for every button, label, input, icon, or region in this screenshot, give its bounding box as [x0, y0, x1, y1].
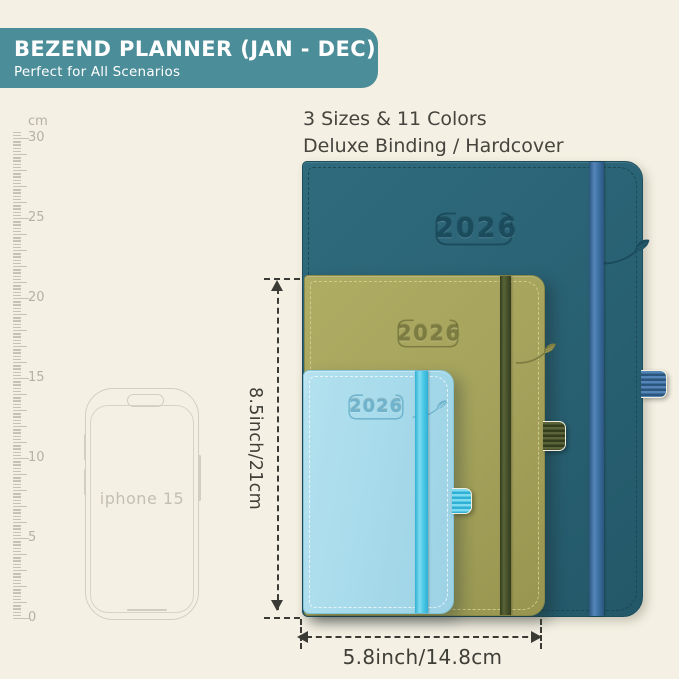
dimension-line — [277, 288, 279, 610]
ruler-tick — [13, 413, 21, 414]
ruler-tick — [13, 464, 21, 465]
width-label: 5.8inch/14.8cm — [330, 645, 515, 669]
ruler-tick — [13, 224, 21, 225]
ruler-tick — [13, 279, 21, 280]
ruler-tick — [13, 362, 27, 363]
ruler-tick — [13, 212, 21, 213]
ruler-tick — [13, 586, 27, 587]
ruler-tick — [13, 208, 21, 209]
ruler-tick — [13, 372, 21, 373]
ruler-tick — [13, 420, 21, 421]
dimension-tick — [264, 617, 300, 619]
product-image-canvas: BEZEND PLANNER (JAN - DEC) Perfect for A… — [0, 0, 679, 679]
ruler-tick — [13, 368, 21, 369]
ruler-tick — [13, 487, 21, 488]
ruler-tick — [13, 589, 21, 590]
phone-screen-outline — [90, 405, 194, 613]
ruler-label-25: 25 — [28, 210, 45, 225]
ruler-tick — [13, 426, 27, 427]
ruler-tick — [13, 516, 21, 517]
planner-small-blue: 2026 — [303, 370, 454, 614]
ruler-tick — [13, 388, 21, 389]
ruler-tick — [13, 343, 21, 344]
feature-line-binding: Deluxe Binding / Hardcover — [303, 133, 564, 160]
banner-title: BEZEND PLANNER (JAN - DEC) — [14, 37, 378, 61]
ruler-tick — [13, 244, 21, 245]
ruler-tick — [13, 199, 21, 200]
ruler-tick — [13, 154, 27, 155]
ruler-unit-label: cm — [28, 114, 48, 129]
bottom-port — [127, 609, 167, 611]
ruler-tick — [13, 215, 21, 216]
ruler-tick — [13, 304, 21, 305]
ruler-tick — [13, 346, 27, 347]
ruler-tick — [13, 570, 27, 571]
ruler-label-20: 20 — [28, 290, 45, 305]
ruler-tick — [13, 320, 21, 321]
ruler-tick — [13, 567, 21, 568]
ruler-tick — [13, 192, 21, 193]
ruler-tick — [13, 429, 21, 430]
ruler-tick — [13, 432, 21, 433]
ruler-tick — [13, 509, 21, 510]
ruler-tick — [13, 455, 21, 456]
ruler-tick — [13, 525, 21, 526]
ruler-tick — [13, 404, 21, 405]
ruler-tick — [13, 564, 21, 565]
arrow-up-icon — [271, 280, 283, 291]
ruler-tick — [13, 461, 21, 462]
ruler-tick — [13, 189, 21, 190]
banner-subtitle: Perfect for All Scenarios — [14, 64, 378, 80]
ruler-tick — [13, 180, 21, 181]
ruler-tick — [13, 548, 21, 549]
ruler-tick — [13, 285, 21, 286]
ruler-tick — [13, 538, 29, 539]
ruler-tick — [13, 135, 21, 136]
year-text: 2026 — [397, 321, 459, 345]
ruler-tick — [13, 141, 21, 142]
pen-loop — [452, 488, 472, 514]
ruler-tick — [13, 445, 21, 446]
dimension-line — [306, 636, 538, 638]
ruler-tick — [13, 397, 21, 398]
ruler-tick — [13, 468, 21, 469]
ruler-tick — [13, 605, 21, 606]
ruler-tick — [13, 500, 21, 501]
ruler-tick — [13, 301, 21, 302]
arrow-left-icon — [297, 631, 308, 643]
ruler-tick — [13, 228, 21, 229]
ruler-label-0: 0 — [28, 610, 36, 625]
height-label: 8.5inch/21cm — [245, 387, 265, 507]
ruler-tick — [13, 493, 21, 494]
ruler-tick — [13, 202, 27, 203]
ruler-tick — [13, 474, 27, 475]
ruler-tick — [13, 439, 21, 440]
ruler-tick — [13, 272, 21, 273]
ruler-tick — [13, 170, 27, 171]
ruler-tick — [13, 298, 29, 299]
arrow-down-icon — [271, 600, 283, 611]
ruler-tick — [13, 551, 21, 552]
ruler-tick — [13, 324, 21, 325]
ruler-tick — [13, 349, 21, 350]
ruler-tick — [13, 365, 21, 366]
ruler-tick — [13, 160, 21, 161]
ruler-tick — [13, 292, 21, 293]
ruler-tick — [13, 148, 21, 149]
ruler-tick — [13, 240, 21, 241]
dynamic-island — [127, 394, 164, 407]
ruler-tick — [13, 391, 21, 392]
ruler-tick — [13, 295, 21, 296]
ruler-tick — [13, 490, 27, 491]
ruler-tick — [13, 234, 27, 235]
ruler-tick — [13, 512, 21, 513]
ruler-tick — [13, 378, 29, 379]
ruler-label-15: 15 — [28, 370, 45, 385]
ruler-tick — [13, 176, 21, 177]
ruler-tick — [13, 330, 27, 331]
ruler-tick — [13, 231, 21, 232]
ruler-tick — [13, 221, 21, 222]
ruler-tick — [13, 164, 21, 165]
feature-note: 3 Sizes & 11 Colors Deluxe Binding / Har… — [303, 106, 564, 160]
ruler-tick — [13, 167, 21, 168]
feather-icon — [515, 343, 557, 365]
ruler-tick — [13, 282, 27, 283]
ruler-tick — [13, 442, 27, 443]
ruler-tick — [13, 452, 21, 453]
ruler-tick — [13, 522, 27, 523]
ruler-tick — [13, 276, 21, 277]
ruler-tick — [13, 356, 21, 357]
feather-icon — [599, 239, 651, 266]
ruler-tick — [13, 535, 21, 536]
pen-loop — [543, 421, 566, 451]
ruler-tick — [13, 471, 21, 472]
ruler-tick — [13, 157, 21, 158]
ruler-tick — [13, 544, 21, 545]
ruler-tick — [13, 352, 21, 353]
ruler-tick — [13, 519, 21, 520]
ruler-tick — [13, 448, 21, 449]
ruler-tick — [13, 263, 21, 264]
phone-label: iphone 15 — [86, 489, 198, 508]
ruler-tick — [13, 381, 21, 382]
ruler-tick — [13, 583, 21, 584]
ruler-tick — [13, 528, 21, 529]
ruler-tick — [13, 333, 21, 334]
ruler-tick — [13, 340, 21, 341]
ruler-tick — [13, 253, 21, 254]
ruler-tick — [13, 183, 21, 184]
ruler-tick — [13, 612, 21, 613]
ruler-tick — [13, 218, 29, 219]
ruler-tick — [13, 186, 27, 187]
side-button — [198, 455, 201, 501]
ruler-label-5: 5 — [28, 530, 36, 545]
ruler-tick — [13, 314, 27, 315]
year-text: 2026 — [348, 396, 404, 417]
ruler-tick — [13, 317, 21, 318]
ruler-tick — [13, 560, 21, 561]
ruler-tick — [13, 256, 21, 257]
ruler-tick — [13, 541, 21, 542]
ruler-tick — [13, 288, 21, 289]
ruler: cm 30 25 20 15 10 5 0 — [0, 0, 60, 679]
volume-up-button — [84, 434, 87, 460]
year-text: 2026 — [435, 213, 513, 244]
ruler-label-30: 30 — [28, 130, 45, 145]
ruler-tick — [13, 359, 21, 360]
ruler-tick — [13, 173, 21, 174]
ruler-tick — [13, 384, 21, 385]
ruler-tick — [13, 423, 21, 424]
ruler-tick — [13, 576, 21, 577]
feature-line-sizes: 3 Sizes & 11 Colors — [303, 106, 564, 133]
arrow-right-icon — [531, 631, 542, 643]
ruler-tick — [13, 496, 21, 497]
ruler-tick — [13, 599, 21, 600]
ruler-tick — [13, 580, 21, 581]
ruler-tick — [13, 394, 27, 395]
iphone-outline: iphone 15 — [85, 388, 199, 620]
ruler-tick — [13, 503, 21, 504]
ruler-tick — [13, 416, 21, 417]
ruler-tick — [13, 205, 21, 206]
year-emboss-logo: 2026 — [435, 212, 513, 246]
ruler-tick — [13, 327, 21, 328]
ruler-label-10: 10 — [28, 450, 45, 465]
elastic-band — [589, 162, 604, 616]
ruler-tick — [13, 557, 21, 558]
ruler-tick — [13, 151, 21, 152]
elastic-band — [415, 371, 428, 613]
ruler-tick — [13, 132, 21, 133]
ruler-tick — [13, 269, 21, 270]
ruler-tick — [13, 458, 29, 459]
ruler-tick — [13, 308, 21, 309]
ruler-tick — [13, 144, 21, 145]
ruler-tick — [13, 615, 21, 616]
ruler-tick — [13, 436, 21, 437]
ruler-tick — [13, 506, 27, 507]
ruler-tick — [13, 311, 21, 312]
ruler-tick — [13, 573, 21, 574]
ruler-tick — [13, 618, 29, 619]
ruler-tick — [13, 407, 21, 408]
ruler-tick — [13, 477, 21, 478]
year-emboss-logo: 2026 — [348, 394, 404, 420]
ruler-tick — [13, 484, 21, 485]
pen-loop — [641, 370, 667, 398]
ruler-tick — [13, 608, 21, 609]
ruler-tick — [13, 237, 21, 238]
year-emboss-logo: 2026 — [397, 319, 459, 348]
ruler-tick — [13, 138, 29, 139]
ruler-tick — [13, 410, 27, 411]
ruler-tick — [13, 196, 21, 197]
ruler-tick — [13, 336, 21, 337]
ruler-tick — [13, 602, 27, 603]
ruler-tick — [13, 400, 21, 401]
ruler-tick — [13, 554, 27, 555]
elastic-band — [500, 276, 511, 615]
ruler-tick — [13, 247, 21, 248]
ruler-tick — [13, 480, 21, 481]
ruler-tick — [13, 260, 21, 261]
ruler-tick — [13, 596, 21, 597]
ruler-tick — [13, 375, 21, 376]
ruler-tick — [13, 592, 21, 593]
ruler-tick — [13, 250, 27, 251]
ruler-tick — [13, 266, 27, 267]
ruler-tick — [13, 532, 21, 533]
